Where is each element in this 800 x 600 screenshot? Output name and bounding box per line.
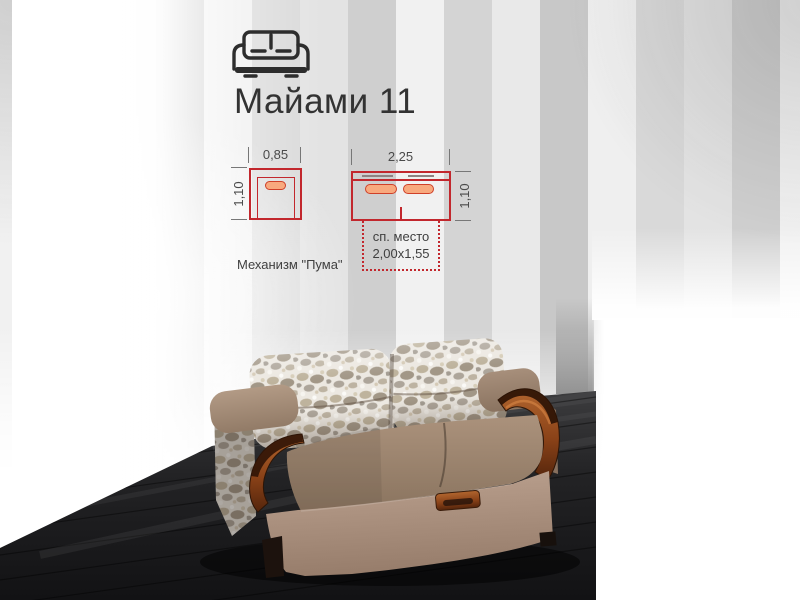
dim-tick — [231, 167, 247, 168]
sofa-width-dimension: 2,25 — [351, 149, 450, 165]
product-card: Майами 11 0,85 1,10 2,25 1,10 сп. место … — [0, 0, 800, 600]
sofa-cushion-left — [365, 184, 397, 194]
wall-corner-white — [592, 318, 800, 600]
sofa-back-dash — [408, 175, 434, 177]
sofa-center-line — [400, 207, 402, 221]
dim-tick — [455, 171, 471, 172]
wall-corner-white-fade — [592, 228, 800, 320]
sleeping-area-outline: сп. место 2,00x1,55 — [362, 221, 440, 271]
sofa-cushion-right — [403, 184, 434, 194]
seat-width-dimension: 0,85 — [249, 147, 302, 163]
dim-tick — [231, 219, 247, 220]
sofa-backrest-line — [353, 179, 449, 181]
seat-depth-dimension: 1,10 — [231, 177, 245, 211]
mechanism-label: Механизм "Пума" — [237, 257, 343, 272]
sleeping-area-size: 2,00x1,55 — [372, 245, 429, 262]
page-title: Майами 11 — [234, 82, 416, 122]
sofa-back-dash — [362, 175, 393, 177]
dim-tick — [455, 220, 471, 221]
single-seat-cushion — [265, 181, 286, 190]
wall-corner-shadow — [556, 298, 594, 394]
sleeping-area-caption: сп. место — [373, 228, 429, 245]
sofa-depth-dimension: 1,10 — [457, 179, 471, 213]
sofa-icon — [229, 29, 313, 79]
